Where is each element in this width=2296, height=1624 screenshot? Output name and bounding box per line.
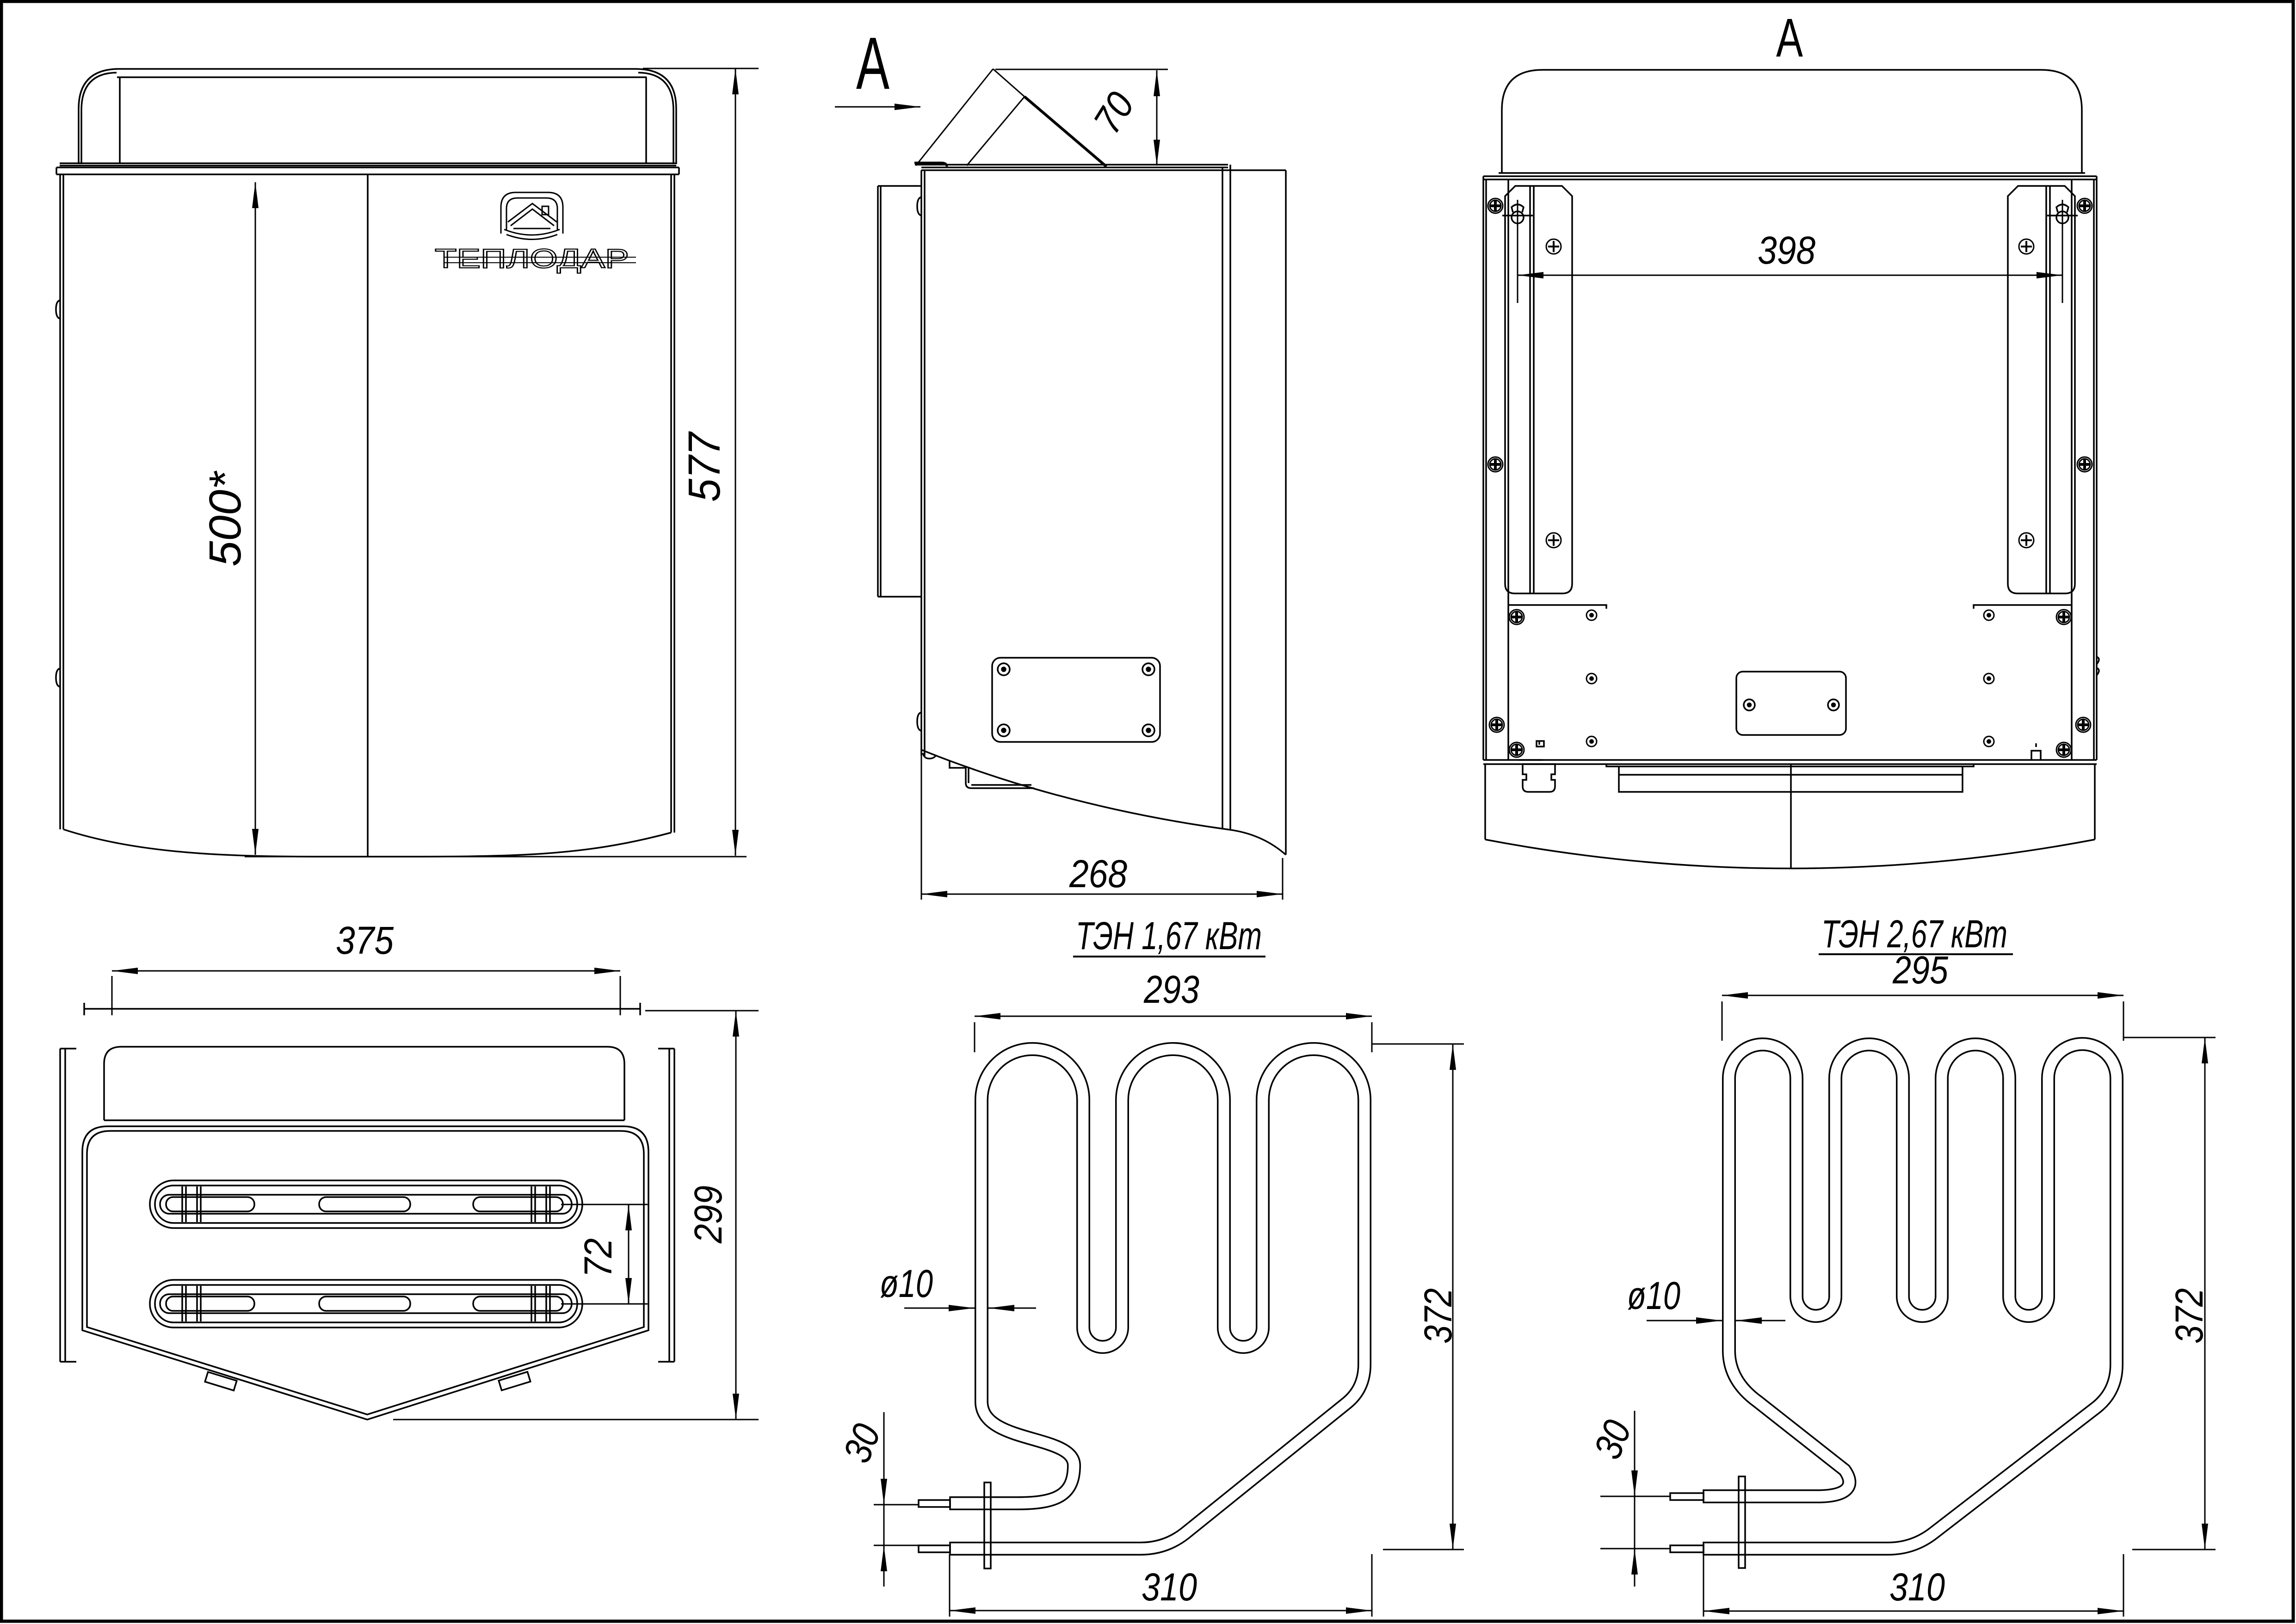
svg-text:577: 577 (679, 431, 729, 502)
svg-text:ø10: ø10 (1627, 1274, 1680, 1317)
svg-text:ТЭН 1,67 кВт: ТЭН 1,67 кВт (1076, 914, 1262, 957)
svg-text:72: 72 (576, 1238, 620, 1278)
svg-text:375: 375 (336, 919, 394, 962)
svg-text:398: 398 (1758, 228, 1815, 272)
svg-text:500*: 500* (200, 470, 250, 567)
svg-text:295: 295 (1892, 948, 1948, 992)
svg-text:ø10: ø10 (880, 1262, 933, 1305)
svg-text:A: A (1776, 7, 1803, 68)
svg-text:ТЕПЛОДАР: ТЕПЛОДАР (435, 244, 629, 274)
svg-text:70: 70 (1085, 84, 1143, 141)
svg-text:299: 299 (686, 1186, 730, 1244)
svg-text:30: 30 (1586, 1414, 1640, 1465)
svg-text:372: 372 (1416, 1288, 1460, 1344)
svg-text:310: 310 (1142, 1565, 1197, 1609)
svg-text:268: 268 (1069, 852, 1127, 895)
svg-text:293: 293 (1143, 968, 1199, 1011)
svg-text:310: 310 (1889, 1565, 1945, 1609)
svg-text:30: 30 (835, 1418, 889, 1469)
svg-text:A: A (856, 22, 889, 105)
svg-text:372: 372 (2167, 1288, 2211, 1344)
